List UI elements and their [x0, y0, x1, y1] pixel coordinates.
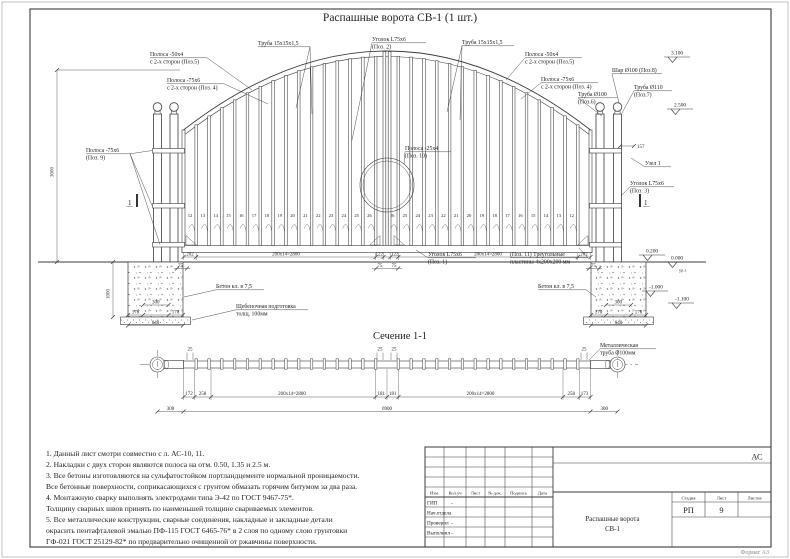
- picket-number: 16: [518, 213, 523, 218]
- picket: [208, 116, 211, 246]
- annotation-leader: [130, 151, 152, 154]
- picket-number-leader: [304, 225, 310, 231]
- picket-number: 21: [454, 213, 459, 218]
- section-picket-tick: [246, 359, 248, 369]
- ball-finial: [170, 103, 179, 112]
- strap-band: [153, 243, 185, 248]
- drawing-canvas: Распашные ворота СВ-1 (1 шт.) 1213141516…: [0, 0, 790, 559]
- picket-number-leader: [455, 225, 461, 231]
- tb-header: Подпись: [510, 491, 527, 496]
- annotation-text: толщ. 100мм: [236, 312, 268, 318]
- level-mark-arrow: [668, 57, 677, 63]
- section-picket-tick: [513, 359, 515, 369]
- level-mark-arrow: [643, 255, 652, 261]
- section-picket-tick: [349, 359, 351, 369]
- annotation-text: Металлическая: [600, 343, 638, 349]
- picket-number-leader: [253, 225, 259, 231]
- annotation-text: (Поз. 2): [372, 44, 391, 51]
- picket-number-leader: [391, 225, 397, 231]
- picket-number-leader: [416, 225, 422, 231]
- annotation-leader: [612, 74, 619, 103]
- annotation-text: Узел 1: [645, 161, 661, 167]
- picket-number-leader: [266, 225, 272, 231]
- dim: 640: [615, 321, 623, 326]
- annotation-text: Бетон кл. в 7,5: [216, 284, 252, 290]
- section-picket-tick: [538, 359, 540, 369]
- picket-number: 13: [556, 213, 561, 218]
- note-line: Толщину сварных швов принять по наименьш…: [46, 504, 314, 513]
- ball-finial: [613, 103, 622, 112]
- leaf-edge-center-2: [388, 52, 391, 253]
- annotation-text: Труба Ø100: [578, 91, 607, 98]
- section-view: Сечение 1-1 25 25 25 25 172: [140, 331, 638, 412]
- picket: [259, 86, 262, 245]
- section-picket-tick: [551, 359, 553, 369]
- tb-dash: -: [451, 521, 453, 527]
- picket-number-leader: [570, 225, 576, 231]
- section-dim-texts: 172 258 200х14=2800 181 181 200х14=2800 …: [167, 392, 609, 412]
- picket: [461, 67, 464, 246]
- picket-number: 12: [188, 213, 193, 218]
- dim: 300: [152, 301, 160, 306]
- picket: [551, 108, 554, 246]
- picket-number: 22: [441, 213, 446, 218]
- strap-band: [153, 149, 185, 154]
- annotation-text: Шар Ø100 (Поз.8): [612, 67, 657, 74]
- section-25-dims: 25 25 25 25: [187, 348, 587, 361]
- tb-header: № док.: [488, 491, 502, 496]
- level-mark-arrow: [671, 109, 680, 115]
- tb-header: Кол.уч: [448, 491, 462, 496]
- picket: [577, 125, 580, 246]
- annotation-text: (Поз. 3): [630, 188, 649, 195]
- picket-number-leader: [227, 225, 233, 231]
- picket: [525, 93, 528, 246]
- level-mark-arrow: [668, 262, 677, 268]
- section-picket-tick: [310, 359, 312, 369]
- picket-number-leader: [240, 225, 246, 231]
- dim: 170: [132, 311, 140, 316]
- section-picket-tick: [272, 359, 274, 369]
- foundation-left: [128, 262, 183, 317]
- sheet-number: 9: [719, 506, 723, 515]
- ball-finial: [596, 103, 605, 112]
- notes: 1. Данный лист смотри совместно с л. АС-…: [46, 449, 360, 546]
- picket-number-leader: [368, 225, 374, 231]
- annotation-leader: [184, 290, 216, 297]
- level-mark-value: 0.000: [671, 256, 683, 262]
- dim: 258: [199, 392, 207, 397]
- arch-bottom-chord: [184, 57, 591, 136]
- section-rail: [184, 361, 591, 368]
- picket-number-leader: [429, 225, 435, 231]
- tb-role: Проверил: [427, 521, 449, 527]
- dim: 181: [378, 392, 386, 397]
- dim: 1000: [107, 289, 112, 300]
- foundation-right: [591, 262, 646, 317]
- picket-number-leader: [519, 225, 525, 231]
- section-picket-tick: [374, 359, 376, 369]
- picket: [538, 100, 541, 246]
- picket: [448, 63, 451, 245]
- picket: [397, 56, 400, 245]
- title-block-texts: АС Изм. Кол.уч Лист № док. Подпись Дата …: [427, 453, 763, 537]
- annotation-text: (Поз. 11) Треугольные: [510, 251, 565, 258]
- annotation-leader: [506, 58, 525, 80]
- section-mark-label: 1: [644, 199, 648, 207]
- section-picket-tick: [233, 359, 235, 369]
- picket-number: 18: [265, 213, 270, 218]
- dim: 122: [376, 253, 384, 258]
- level-mark-value: 0.200: [646, 249, 658, 255]
- note-line: 3. Все бетоны изготовляются на сульфатос…: [46, 471, 360, 480]
- section-picket-tick: [461, 359, 463, 369]
- note-line: 4. Монтажную сварку выполнять электродам…: [46, 493, 294, 502]
- annotation-text: Полоса -75х6: [541, 77, 574, 83]
- note-line: 5. Все металлические конструкции, сварны…: [46, 515, 333, 524]
- dim: 300: [601, 407, 609, 412]
- picket-number: 25: [403, 213, 408, 218]
- picket: [323, 63, 326, 245]
- annotation-text: Труба Ø110: [634, 84, 663, 91]
- dim: 25: [582, 348, 588, 353]
- section-picket-tick: [577, 359, 579, 369]
- annotation-text: с 2-х сторон (Поз.5): [525, 59, 574, 66]
- dim: 170: [635, 311, 643, 316]
- picket-number-leader: [493, 225, 499, 231]
- annotation-text: Труба 15х15х1,5: [258, 40, 299, 47]
- picket-number: 19: [480, 213, 485, 218]
- drawing-sheet: Распашные ворота СВ-1 (1 шт.) 1213141516…: [0, 0, 790, 559]
- picket: [362, 57, 365, 245]
- picket-number: 17: [252, 213, 257, 218]
- picket-number-leader: [189, 225, 195, 231]
- picket-number: 18: [492, 213, 497, 218]
- dim: 157: [637, 145, 645, 150]
- picket-number: 15: [226, 213, 231, 218]
- picket-number-leader: [317, 225, 323, 231]
- picket-number: 14: [213, 213, 218, 218]
- picket-number: 26: [367, 213, 372, 218]
- ring-ornament-outer: [360, 158, 414, 212]
- section-stub-left: [164, 360, 184, 368]
- picket: [195, 125, 198, 246]
- picket: [474, 71, 477, 246]
- annotation-text: Полоса -75х6: [86, 148, 119, 154]
- dim: 200х14=2800: [474, 253, 502, 258]
- picket: [500, 81, 503, 246]
- annotation-leader: [621, 187, 630, 196]
- annotation-leader: [622, 91, 634, 113]
- annotation-leader: [130, 154, 152, 206]
- section-picket-tick: [487, 359, 489, 369]
- sheet-label: Лист: [717, 496, 727, 501]
- picket: [272, 81, 275, 246]
- picket-number-leader: [355, 225, 361, 231]
- section-picket-tick: [208, 359, 210, 369]
- ring-ornament-inner: [363, 161, 411, 209]
- dim: 200х14=2800: [278, 392, 306, 397]
- annotation-text: (Поз. 9): [86, 155, 105, 162]
- picket-number-leader: [557, 225, 563, 231]
- annotation-text: Полоса -25х4: [405, 146, 438, 152]
- drawing-title: Распашные ворота СВ-1 (1 шт.): [323, 12, 477, 24]
- picket-number-leader: [506, 225, 512, 231]
- strap-band: [153, 204, 185, 209]
- annotation-text: Бетон кл. в 7,5: [538, 284, 574, 290]
- picket-number: 20: [467, 213, 472, 218]
- doc-name-line1: Распашные ворота: [586, 516, 640, 523]
- annotation-text: Щебеночная подготовка: [236, 303, 296, 310]
- annotation-text: (Поз.7): [634, 92, 652, 99]
- picket-number: 24: [415, 213, 420, 218]
- dim: 170: [172, 311, 180, 316]
- section-picket-tick: [221, 359, 223, 369]
- picket-number: 22: [316, 213, 321, 218]
- annotation-text: Уголок L75х6: [372, 37, 406, 43]
- section-picket-tick: [285, 359, 287, 369]
- picket-number-leader: [404, 225, 410, 231]
- dim: 300: [167, 407, 175, 412]
- level-mark-value: -1.000: [649, 285, 663, 291]
- dim: 200х14=2800: [272, 253, 300, 258]
- picket: [285, 75, 288, 245]
- annotation-text: с 2-х сторон (Поз. 4): [167, 85, 218, 92]
- section-picket-tick: [436, 359, 438, 369]
- format-label: Формат А3: [741, 550, 769, 556]
- picket: [233, 100, 236, 246]
- picket: [374, 56, 377, 245]
- section-stub-right: [591, 360, 611, 368]
- strap-band: [590, 243, 622, 248]
- annotation-text: (Поз. 1): [428, 259, 447, 266]
- dim: 75: [392, 264, 398, 269]
- title-block: АС Изм. Кол.уч Лист № док. Подпись Дата …: [425, 447, 771, 547]
- dim: 300: [615, 301, 623, 306]
- annotation-leader: [631, 158, 645, 167]
- picket-number-leader: [442, 225, 448, 231]
- section-picket-tick: [448, 359, 450, 369]
- note-line: окрасить пентафталевой эмалью ПФ-115 ГОС…: [46, 526, 347, 535]
- section-picket-tick: [195, 359, 197, 369]
- dim: 202: [186, 253, 194, 258]
- annotation-text: Уголок L75х6: [428, 252, 462, 258]
- tb-header: Изм.: [430, 491, 439, 496]
- level-mark-arrow: [646, 291, 655, 297]
- picket-number-leader: [343, 225, 349, 231]
- picket-number-leader: [468, 225, 474, 231]
- dim: 25: [392, 348, 398, 353]
- section-picket-tick: [410, 359, 412, 369]
- note-line: Все бетонные поверхности, соприкасающихс…: [46, 482, 357, 491]
- section-picket-tick: [323, 359, 325, 369]
- annotation-leader: [521, 83, 541, 99]
- section-picket-tick: [259, 359, 261, 369]
- dim: 6900: [382, 407, 393, 412]
- dim: 258: [568, 392, 576, 397]
- picket-number-leader: [202, 225, 208, 231]
- post-shaft: [614, 114, 622, 262]
- section-picket-tick: [564, 359, 566, 369]
- annotation-text: пластины 4х200х200 мм: [510, 260, 570, 266]
- dim: 173: [581, 392, 589, 397]
- tb-role: ГИП: [427, 501, 438, 507]
- annotation-text: Полоса -50х4: [150, 52, 183, 58]
- dim: 181: [389, 392, 397, 397]
- picket-number-leader: [330, 225, 336, 231]
- annotation-text: труба Ø100мм: [600, 350, 636, 357]
- picket: [512, 86, 515, 245]
- annotation-text: Полоса -75х6: [167, 78, 200, 84]
- picket-number: 16: [239, 213, 244, 218]
- picket: [221, 108, 224, 246]
- picket: [487, 75, 490, 245]
- stage-value: РП: [683, 506, 694, 515]
- strap-band: [590, 149, 622, 154]
- tb-dash: -: [451, 531, 453, 537]
- section-mark-label: 1: [128, 199, 132, 207]
- picket-number-leader: [291, 225, 297, 231]
- picket: [564, 116, 567, 246]
- picket: [423, 59, 426, 246]
- dim: 75: [378, 264, 384, 269]
- picket-number: 21: [303, 213, 308, 218]
- section-title: Сечение 1-1: [373, 331, 427, 342]
- section-picket-tick: [397, 359, 399, 369]
- annotation-leader: [589, 349, 600, 360]
- level-mark-arrow: [672, 303, 681, 309]
- annotation-text: (Поз. 10): [405, 153, 427, 160]
- tb-header: Дата: [538, 491, 547, 496]
- picket-number-leader: [532, 225, 538, 231]
- picket: [349, 59, 352, 246]
- tb-role: Выполнил: [427, 531, 450, 537]
- doc-name-line2: СВ-1: [605, 526, 620, 533]
- picket-number: 14: [544, 213, 549, 218]
- picket-number: 20: [290, 213, 295, 218]
- annotation-text: с 2-х сторон (Поз. 4): [541, 84, 592, 91]
- dim: 170: [595, 311, 603, 316]
- note-line: 2. Накладки с двух сторон являются полос…: [46, 460, 270, 469]
- dim: 25: [378, 348, 384, 353]
- annotation-text: с 2-х сторон (Поз.5): [150, 59, 199, 66]
- level-mark-value: 2.500: [674, 103, 686, 109]
- tb-header: Лист: [471, 491, 481, 496]
- doc-code: АС: [751, 453, 763, 462]
- annotation-leader: [192, 310, 236, 320]
- dim: 172: [185, 392, 193, 397]
- leaf-edge-center-1: [383, 52, 386, 253]
- note-line: ГФ-021 ГОСТ 25129-82* по предварительно …: [46, 537, 317, 546]
- picket-number-leader: [278, 225, 284, 231]
- post-shaft: [170, 114, 178, 262]
- picket: [336, 61, 339, 246]
- picket-number: 19: [277, 213, 282, 218]
- post-shaft: [154, 114, 162, 262]
- section-picket-tick: [525, 359, 527, 369]
- post-shaft: [596, 114, 604, 262]
- stage-label: Стадия: [681, 496, 696, 501]
- picket-number-leader: [545, 225, 551, 231]
- section-picket-tick: [336, 359, 338, 369]
- picket-number: 23: [428, 213, 433, 218]
- picket-number: 23: [329, 213, 334, 218]
- picket: [246, 93, 249, 246]
- strap-band: [590, 204, 622, 209]
- dim: 640: [152, 321, 160, 326]
- section-picket-tick: [298, 359, 300, 369]
- picket-number: 17: [505, 213, 510, 218]
- picket-number: 15: [531, 213, 536, 218]
- level-mark-value: -1.100: [675, 297, 689, 303]
- picket-number: 12: [569, 213, 574, 218]
- tb-dash: -: [451, 501, 453, 507]
- annotation-text: Полоса -50х4: [525, 52, 558, 58]
- annotation-text: Уголок L75х6: [630, 181, 664, 187]
- note-line: 1. Данный лист смотри совместно с л. АС-…: [46, 449, 205, 458]
- picket-number: 24: [342, 213, 347, 218]
- section-picket-tick: [500, 359, 502, 369]
- sheets-label: Листов: [747, 496, 762, 501]
- dim: 25: [188, 348, 194, 353]
- section-picket-tick: [423, 359, 425, 369]
- picket-number: 13: [201, 213, 206, 218]
- dim: 200х14=2800: [467, 392, 495, 397]
- annotation-text: Труба 15х15х1,5: [462, 39, 503, 46]
- picket: [435, 61, 438, 246]
- tb-role: Нач.отдела: [427, 511, 452, 517]
- picket-number: 25: [354, 213, 359, 218]
- section-picket-tick: [474, 359, 476, 369]
- dim: 3000: [51, 167, 56, 178]
- ball-finial: [153, 103, 162, 112]
- picket-number-leader: [214, 225, 220, 231]
- section-picket-tick: [362, 359, 364, 369]
- level-mark-value: 3.100: [671, 51, 683, 57]
- dim: 75: [591, 264, 597, 269]
- picket-number-leader: [481, 225, 487, 231]
- level-mark-sub: ур.з.: [679, 268, 687, 273]
